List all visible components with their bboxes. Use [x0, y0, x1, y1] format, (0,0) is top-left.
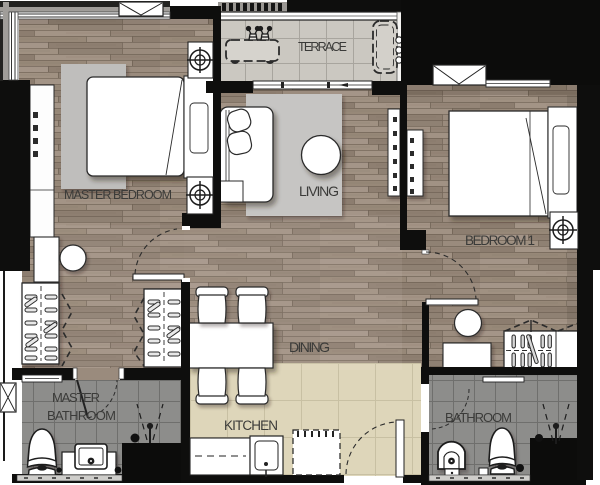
- svg-text:DINING: DINING: [289, 339, 330, 355]
- svg-text:LIVING: LIVING: [299, 183, 339, 199]
- svg-text:MASTER: MASTER: [52, 390, 100, 405]
- svg-text:TERRACE: TERRACE: [298, 40, 347, 54]
- svg-text:BATHROOM: BATHROOM: [47, 408, 116, 423]
- svg-text:BATHROOM: BATHROOM: [445, 410, 512, 425]
- svg-text:MASTER BEDROOM: MASTER BEDROOM: [64, 188, 172, 202]
- svg-text:KITCHEN: KITCHEN: [224, 418, 278, 433]
- svg-text:BEDROOM 1: BEDROOM 1: [465, 233, 535, 248]
